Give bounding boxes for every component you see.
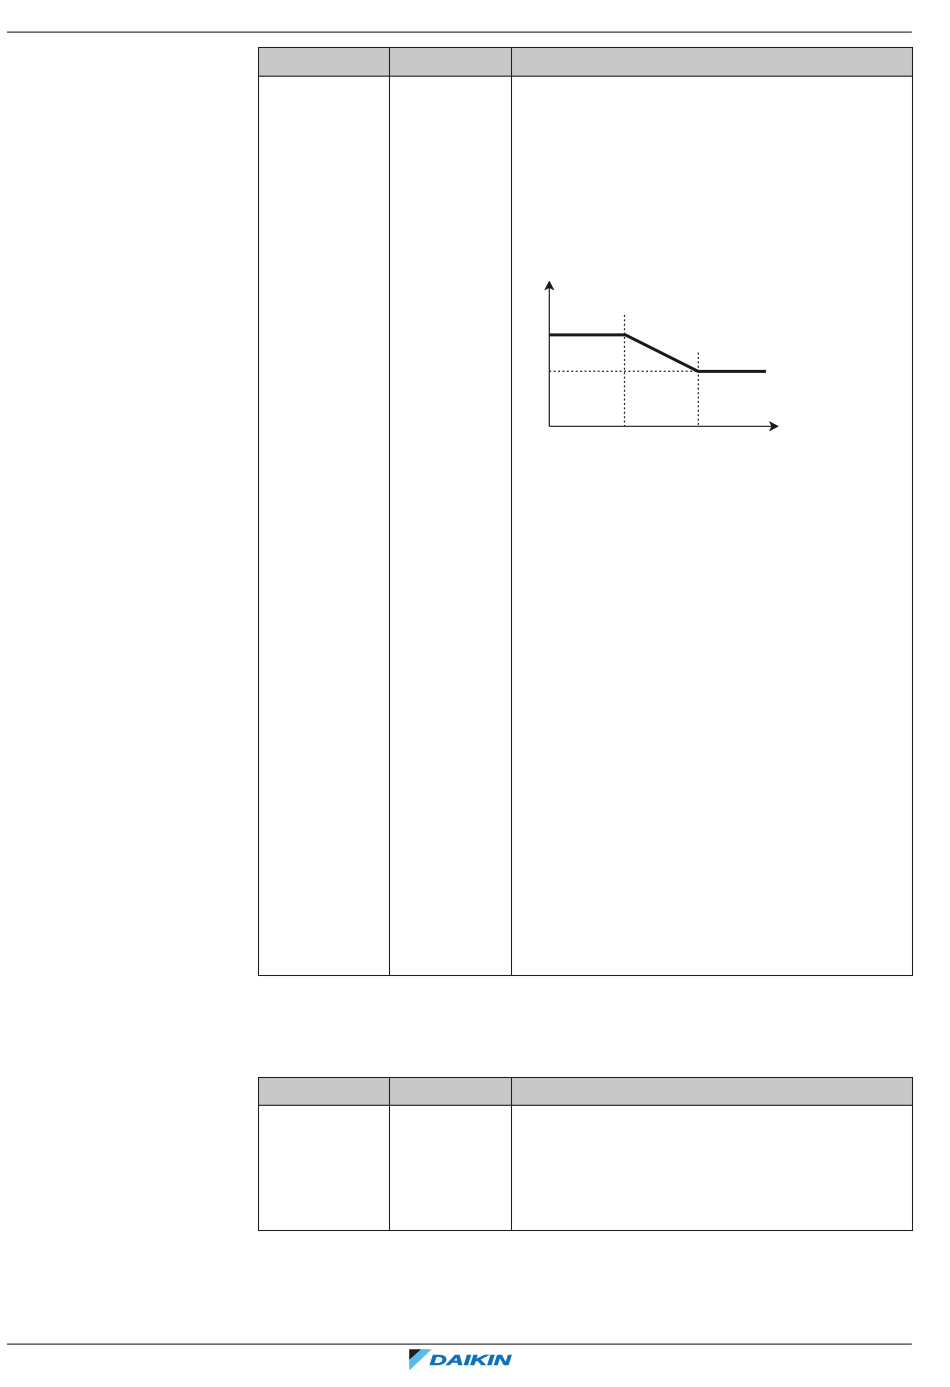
svg-text:DAIKIN: DAIKIN [430, 1352, 512, 1369]
